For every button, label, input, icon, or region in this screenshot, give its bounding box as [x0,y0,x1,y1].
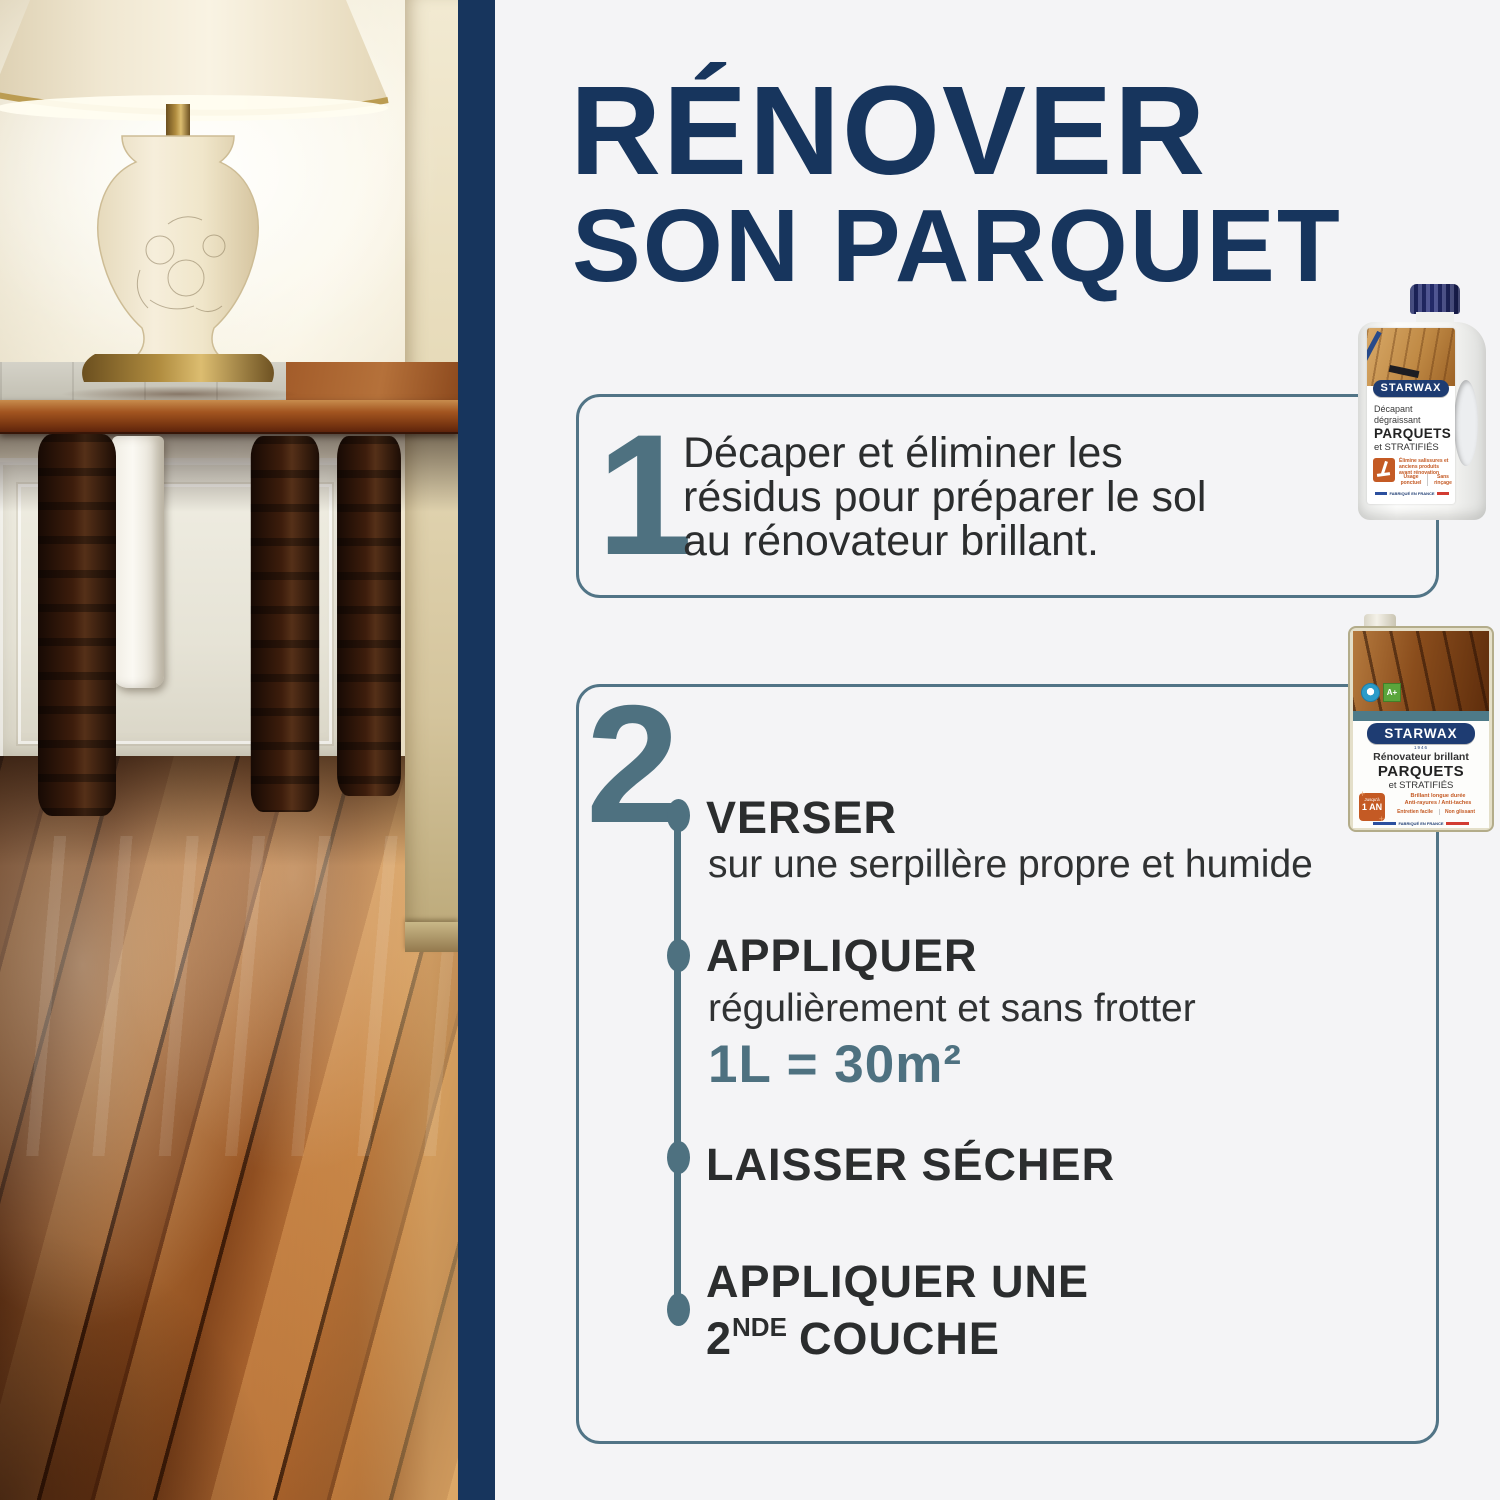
infographic-canvas: RÉNOVER SON PARQUET 1 Décaper et élimine… [0,0,1500,1500]
bottle-handle-hole [1454,380,1478,466]
step2-number: 2 [586,702,679,826]
flag-red-line [1437,492,1449,495]
squeegee-icon [1367,331,1382,372]
table-lamp [0,0,458,400]
floor-scraper-icon [1373,458,1395,482]
second-coat-number: 2 [706,1313,732,1364]
product1-surface2: et STRATIFIÉS [1374,442,1439,453]
brass-lamp-foot [82,354,274,382]
table-front-edge [0,400,458,434]
second-coat-ordinal: NDE [732,1312,787,1342]
starwax-logo: STARWAX [1367,723,1475,744]
origin-text: FABRIQUÉ EN FRANCE [1398,821,1443,826]
wood-floor [0,756,458,1500]
squeegee-head-icon [1389,365,1420,378]
lampshade-underglow [0,95,388,121]
lamp-stem [166,104,190,140]
page-title-line2: SON PARQUET [572,194,1342,297]
product-renovateur-can: A+ STARWAX 1946 Rénovateur brillant PARQ… [1348,614,1494,832]
step2-item3-label: LAISSER SÉCHER [706,1139,1115,1191]
step1-number: 1 [597,432,693,559]
bullet-dot [667,1293,690,1326]
flag-red-line [1446,822,1469,825]
product2-type: Rénovateur brillant [1353,751,1489,763]
bullet-dot [667,799,690,832]
white-cloth [112,436,164,688]
step2-item2-label: APPLIQUER [706,930,978,982]
bottle-cap [1410,284,1460,314]
product2-surface2: et STRATIFIÉS [1353,780,1489,791]
product2-claim1: Brillant longue durée [1391,793,1485,800]
can-label: STARWAX 1946 Rénovateur brillant PARQUET… [1353,721,1489,828]
step2-item2-ratio: 1L = 30m² [708,1034,962,1095]
origin-text: FABRIQUÉ EN FRANCE [1389,491,1434,496]
made-in-france-row: FABRIQUÉ EN FRANCE [1375,491,1449,496]
step2-item2-sub: régulièrement et sans frotter [708,987,1196,1031]
starwax-logo: STARWAX [1373,380,1449,397]
parquet-room-photo [0,0,458,1500]
bottle-label: STARWAX Décapant dégraissant PARQUETS et… [1367,328,1455,504]
product1-feature2: Sans rinçage [1427,474,1455,486]
step2-item4-label-line1: APPLIQUER UNE [706,1256,1089,1308]
bullet-dot [667,939,690,972]
step1-line2: résidus pour préparer le sol [683,475,1206,519]
step2-item1-label: VERSER [706,792,897,844]
product1-type2: dégraissant [1374,415,1421,425]
step1-line1: Décaper et éliminer les [683,431,1206,475]
duration-badge: Jusqu'à 1 AN [1359,793,1385,821]
bullet-dot [667,1141,690,1174]
flag-blue-line [1373,822,1396,825]
table-leg [337,436,401,796]
step1-line3: au rénovateur brillant. [683,519,1206,563]
made-in-france-row: FABRIQUÉ EN FRANCE [1373,821,1469,826]
product1-type1: Décapant [1374,404,1413,414]
floor-gloss-reflection [0,836,458,1156]
product2-feature2: Non glissant [1439,809,1480,815]
can-body: A+ STARWAX 1946 Rénovateur brillant PARQ… [1348,626,1494,832]
page-title-line1: RÉNOVER [570,68,1207,194]
table-leg [38,434,116,816]
teal-band [1353,711,1489,721]
second-coat-word: COUCHE [799,1313,1000,1364]
product1-feature1: Usage ponctuel [1399,474,1423,486]
product2-claim2: Anti-rayures / Anti-taches [1391,800,1485,807]
product2-surface1: PARQUETS [1353,763,1489,780]
navy-divider-bar [458,0,495,1500]
step2-item1-sub: sur une serpillère propre et humide [708,843,1313,887]
step1-description: Décaper et éliminer les résidus pour pré… [683,431,1206,563]
product1-surface1: PARQUETS [1374,426,1451,441]
step2-item4-label-line2: 2NDECOUCHE [706,1312,1000,1365]
product2-feature1: Entretien facile [1395,809,1435,815]
bullet-connector-line [674,815,681,1312]
eco-label-icon [1361,683,1380,702]
badge-main-text: 1 AN [1359,802,1385,812]
can-parquet-photo: A+ [1353,631,1489,711]
emissions-a-plus-badge: A+ [1383,683,1401,702]
product2-claims: Brillant longue durée Anti-rayures / Ant… [1391,793,1485,807]
table-leg [251,436,320,812]
baseboard [405,922,458,952]
product-decapant-bottle: STARWAX Décapant dégraissant PARQUETS et… [1358,284,1486,524]
brand-year: 1946 [1353,745,1489,750]
flag-blue-line [1375,492,1387,495]
label-parquet-photo [1367,328,1455,386]
